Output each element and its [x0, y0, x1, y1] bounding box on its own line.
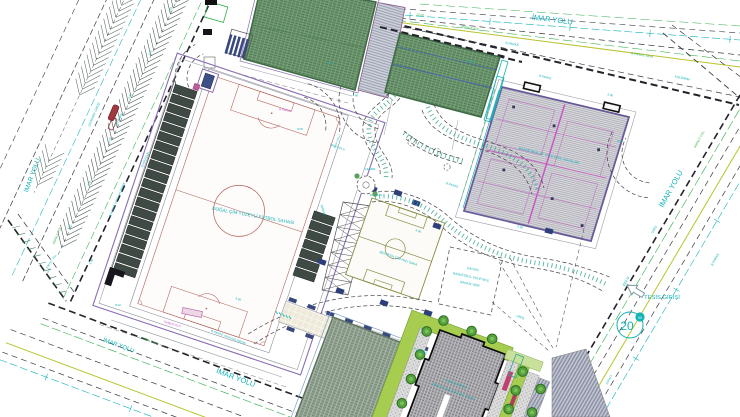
svg-text:R15: R15 [297, 127, 303, 131]
svg-text:ÇEŞME: ÇEŞME [365, 167, 376, 171]
svg-text:00: 00 [638, 316, 642, 320]
svg-text:20: 20 [620, 319, 634, 333]
svg-text:R10: R10 [115, 303, 121, 307]
svg-text:TESİS GİRİŞİ: TESİS GİRİŞİ [644, 294, 680, 301]
svg-text:R10: R10 [617, 139, 623, 143]
